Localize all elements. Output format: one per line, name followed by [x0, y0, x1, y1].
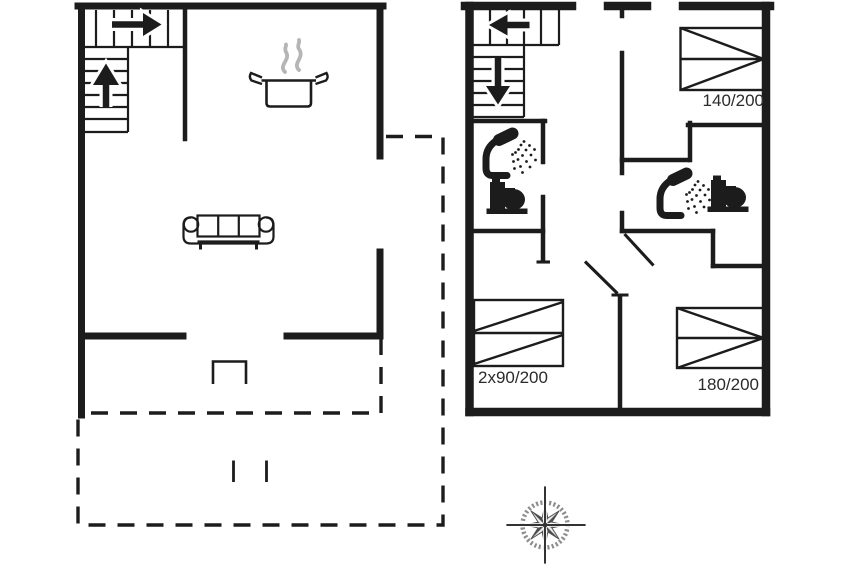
door-swing-right: [625, 234, 654, 266]
compass-rose-icon: [506, 486, 586, 564]
upper-floor-plan: [465, 6, 770, 412]
bed-2x90-icon: [474, 300, 563, 366]
stove-icon: [250, 40, 328, 107]
shower-right-icon: [660, 174, 711, 216]
bed-140-icon: [681, 28, 764, 90]
shower-left-icon: [486, 134, 537, 176]
floorplan-drawing: [0, 0, 848, 565]
staircase-upper-icon: [474, 10, 560, 117]
staircase-ground-icon: [83, 10, 185, 132]
toilet-left-icon: [487, 178, 528, 215]
bed-size-label-180: 180/200: [659, 375, 759, 395]
bed-size-label-140: 140/200: [664, 91, 764, 111]
stair-arrow-right-icon: [112, 13, 162, 36]
floorplan-canvas: 140/200 2x90/200 180/200: [0, 0, 848, 565]
shower-spray: [511, 140, 537, 174]
door-threshold: [213, 362, 246, 385]
bed-size-label-2x90: 2x90/200: [478, 368, 548, 388]
ground-floor-plan: [78, 6, 443, 525]
terrace-outline: [78, 137, 443, 526]
sofa-icon: [184, 216, 274, 250]
ground-floor-walls: [78, 6, 383, 415]
terrace-step-marks: [234, 461, 267, 483]
bed-180-icon: [677, 308, 764, 368]
door-swing-left: [585, 262, 618, 294]
toilet-right-icon: [708, 176, 749, 213]
